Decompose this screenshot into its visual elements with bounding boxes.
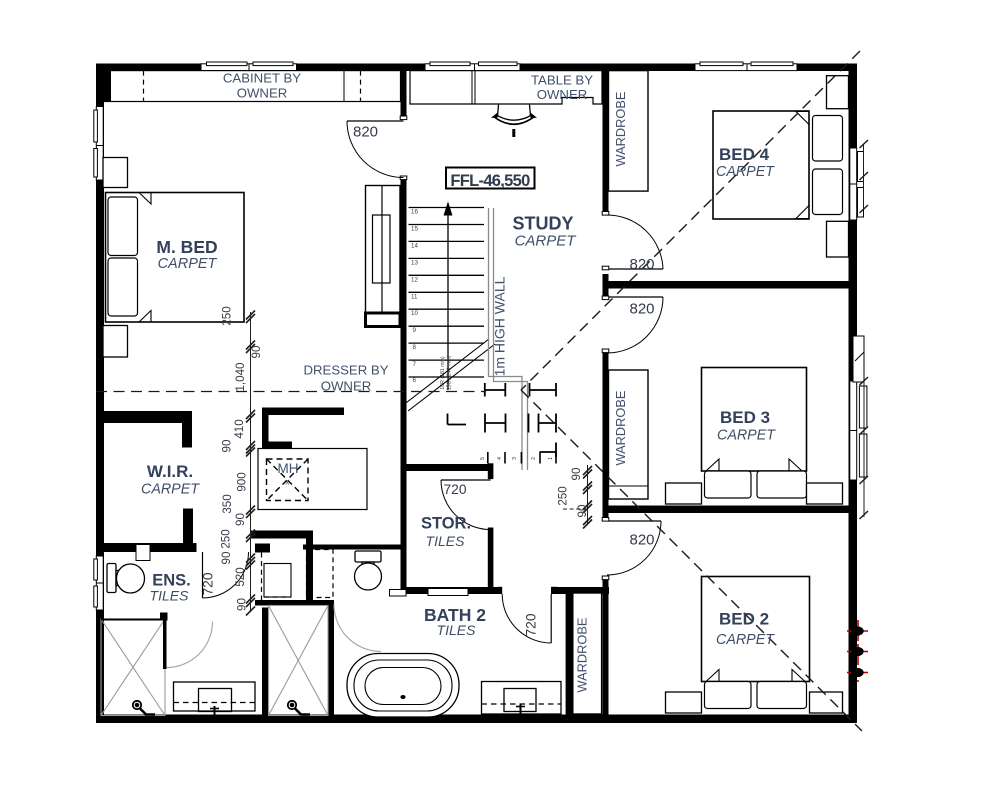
svg-text:DRESSER BY: DRESSER BY [303, 363, 388, 378]
svg-text:TILES: TILES [426, 533, 466, 549]
svg-text:CARPET: CARPET [158, 256, 218, 272]
svg-text:1: 1 [548, 457, 554, 460]
svg-text:TILES: TILES [437, 622, 477, 638]
svg-text:WARDROBE: WARDROBE [613, 92, 628, 167]
svg-text:720: 720 [443, 482, 466, 497]
svg-text:8: 8 [413, 344, 417, 351]
svg-text:250: 250 [557, 486, 570, 505]
svg-text:3: 3 [512, 457, 518, 460]
svg-text:CARPET: CARPET [141, 482, 200, 498]
svg-text:BED 4: BED 4 [719, 145, 770, 164]
svg-text:90: 90 [220, 552, 233, 565]
svg-text:15Gs(240 mm): 15Gs(240 mm) [447, 355, 453, 390]
svg-text:7: 7 [413, 361, 417, 368]
svg-text:11: 11 [411, 293, 418, 300]
svg-text:BED 2: BED 2 [719, 610, 769, 629]
svg-text:CARPET: CARPET [716, 632, 775, 648]
svg-text:90: 90 [236, 598, 249, 611]
svg-text:6: 6 [413, 377, 417, 384]
svg-text:WARDROBE: WARDROBE [613, 391, 628, 466]
svg-text:16: 16 [411, 209, 418, 216]
svg-text:x: x [285, 478, 289, 487]
svg-text:820: 820 [629, 301, 654, 318]
svg-text:MH: MH [278, 461, 299, 476]
svg-text:STUDY: STUDY [512, 214, 573, 234]
svg-text:720: 720 [524, 613, 539, 636]
svg-text:520: 520 [234, 567, 247, 586]
svg-text:1m HIGH WALL: 1m HIGH WALL [492, 276, 508, 376]
svg-text:FFL-46,550: FFL-46,550 [450, 172, 530, 190]
svg-text:9: 9 [413, 327, 417, 334]
svg-text:820: 820 [353, 124, 378, 141]
svg-text:5: 5 [480, 457, 486, 460]
svg-text:12: 12 [411, 276, 418, 283]
svg-text:90: 90 [570, 468, 583, 481]
svg-text:M. BED: M. BED [156, 237, 217, 257]
svg-text:350: 350 [221, 494, 234, 513]
svg-text:90: 90 [250, 346, 263, 359]
svg-text:1,040: 1,040 [234, 362, 247, 391]
svg-text:OWNER: OWNER [537, 87, 588, 102]
svg-text:250: 250 [221, 306, 234, 325]
svg-text:CARPET: CARPET [716, 164, 775, 180]
svg-text:STOR.: STOR. [421, 515, 471, 533]
svg-text:OWNER: OWNER [237, 86, 288, 101]
svg-text:CARPET: CARPET [515, 233, 578, 250]
svg-text:13: 13 [411, 259, 418, 266]
svg-text:250: 250 [220, 529, 233, 548]
svg-text:14: 14 [411, 242, 418, 249]
svg-text:OWNER: OWNER [321, 379, 372, 394]
svg-text:15: 15 [411, 226, 418, 233]
svg-text:TABLE BY: TABLE BY [531, 73, 593, 88]
svg-text:BED 3: BED 3 [720, 408, 770, 427]
svg-text:CABINET BY: CABINET BY [223, 71, 301, 86]
svg-text:90: 90 [221, 440, 234, 453]
svg-text:410: 410 [233, 419, 246, 438]
svg-text:90: 90 [576, 505, 589, 518]
svg-text:720: 720 [201, 572, 216, 595]
svg-text:820: 820 [629, 256, 654, 273]
svg-text:90: 90 [234, 513, 247, 526]
svg-text:820: 820 [629, 532, 654, 549]
svg-text:2: 2 [531, 457, 537, 460]
svg-text:10: 10 [411, 310, 418, 317]
svg-text:900: 900 [236, 472, 249, 491]
svg-text:CARPET: CARPET [717, 428, 776, 444]
svg-text:TILES: TILES [150, 588, 190, 604]
svg-text:W.I.R.: W.I.R. [147, 462, 193, 481]
svg-text:4: 4 [497, 457, 503, 460]
svg-text:WARDROBE: WARDROBE [575, 618, 590, 693]
